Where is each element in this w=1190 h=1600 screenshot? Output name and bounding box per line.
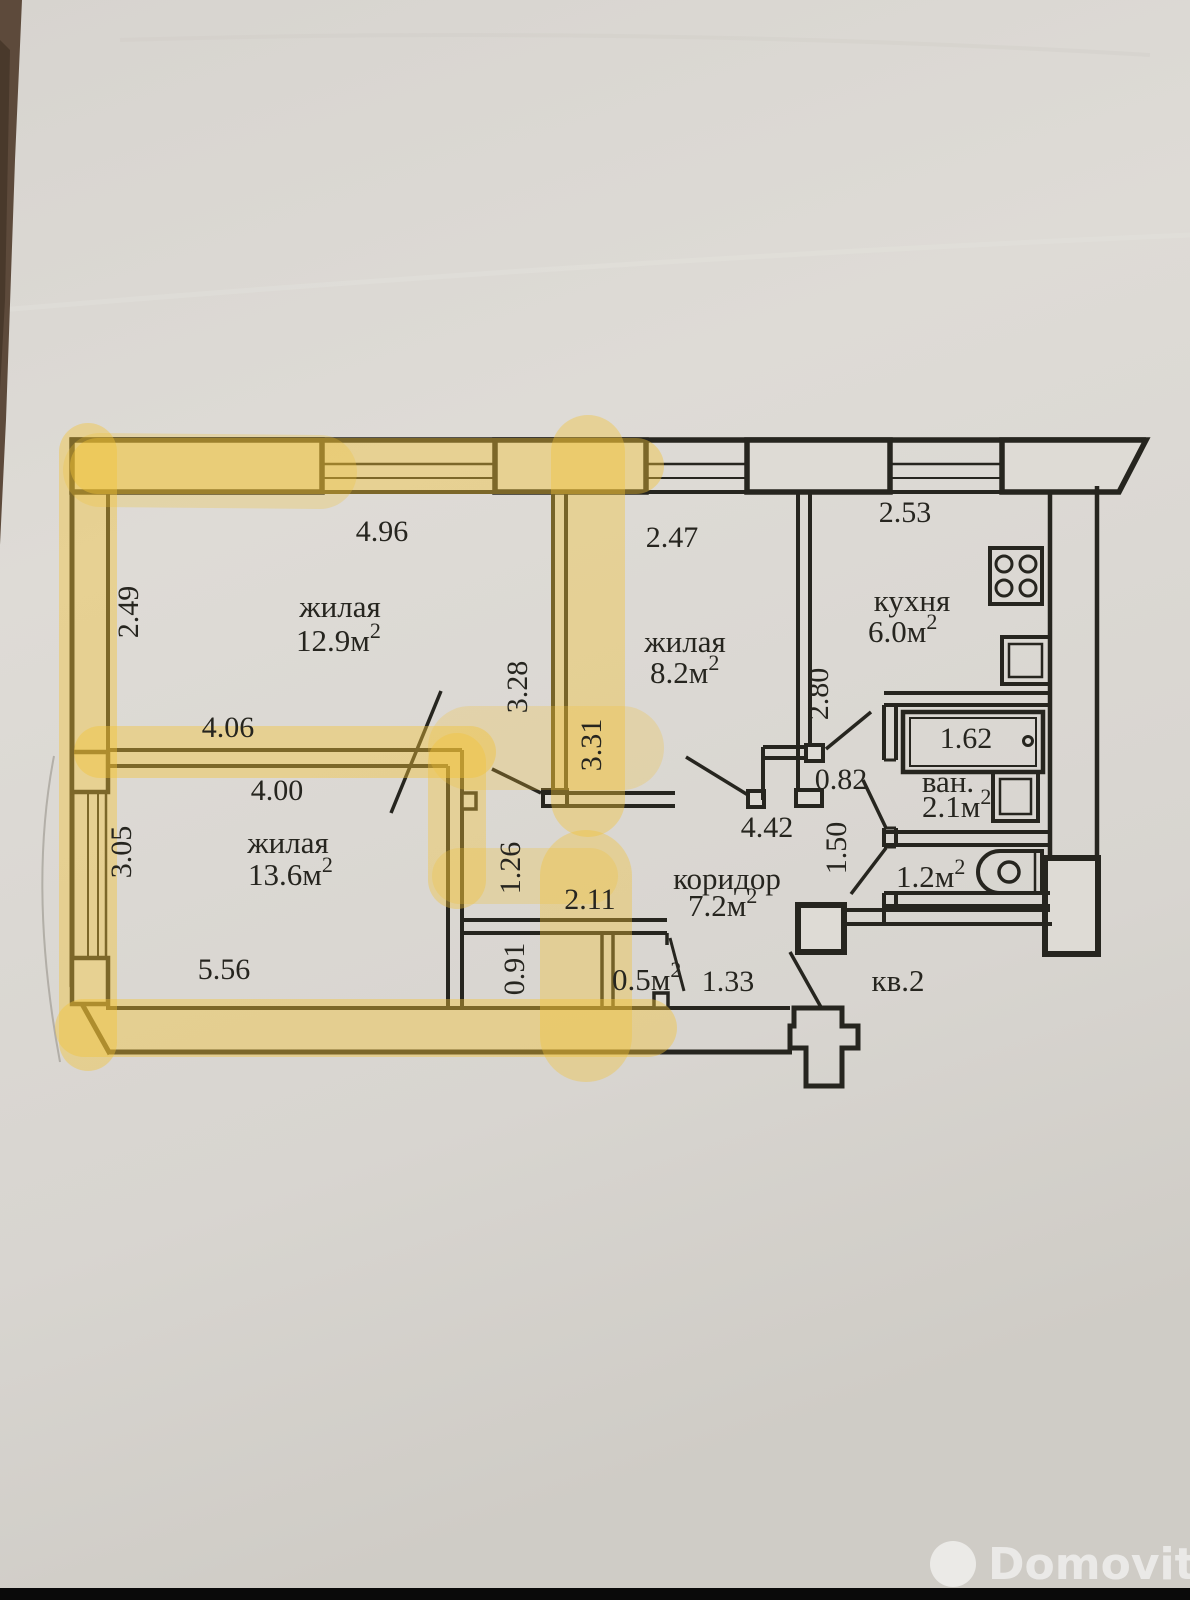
dim-2-80: 2.80 <box>802 668 835 721</box>
dim-3-28: 3.28 <box>501 661 534 714</box>
dim-2-47: 2.47 <box>646 521 699 554</box>
watermark-logo-circle <box>930 1541 976 1587</box>
dim-1-26: 1.26 <box>494 842 527 895</box>
room-label-living3: жилая <box>246 825 329 860</box>
dim-0-91: 0.91 <box>498 943 531 996</box>
dim-2-49: 2.49 <box>112 586 145 639</box>
unit-label: кв.2 <box>872 963 925 998</box>
dim-4-06: 4.06 <box>202 711 255 744</box>
wall-pier-slanted <box>1002 440 1146 492</box>
dim-4-42: 4.42 <box>741 811 794 844</box>
floor-plan-svg: жилая 12.9м2 жилая 8.2м2 кухня 6.0м2 жил… <box>0 0 1190 1600</box>
photo-of-floor-plan: жилая 12.9м2 жилая 8.2м2 кухня 6.0м2 жил… <box>0 0 1190 1600</box>
room-label-kitchen: кухня <box>874 583 950 618</box>
door-jamb <box>806 745 823 761</box>
dim-1-62: 1.62 <box>940 722 993 755</box>
photo-bottom-bar <box>0 1588 1190 1600</box>
dim-3-05: 3.05 <box>105 826 138 879</box>
dim-3-31: 3.31 <box>575 719 608 772</box>
dim-4-00: 4.00 <box>251 774 304 807</box>
room-area-living3: 13.6м2 <box>248 852 333 892</box>
wall-end-pier <box>1045 858 1098 954</box>
dim-2-53: 2.53 <box>879 496 932 529</box>
dim-0-82: 0.82 <box>815 763 868 796</box>
dim-1-50: 1.50 <box>820 822 853 875</box>
dim-1-33: 1.33 <box>702 965 755 998</box>
dim-5-56: 5.56 <box>198 953 251 986</box>
room-area-living1: 12.9м2 <box>296 618 381 658</box>
wall-pier <box>747 440 890 492</box>
watermark-brand-text: Domovita <box>988 1539 1190 1590</box>
room-label-living1: жилая <box>298 589 381 624</box>
corridor-end-pier <box>798 905 844 952</box>
dim-2-11: 2.11 <box>564 883 615 916</box>
dim-4-96: 4.96 <box>356 515 409 548</box>
